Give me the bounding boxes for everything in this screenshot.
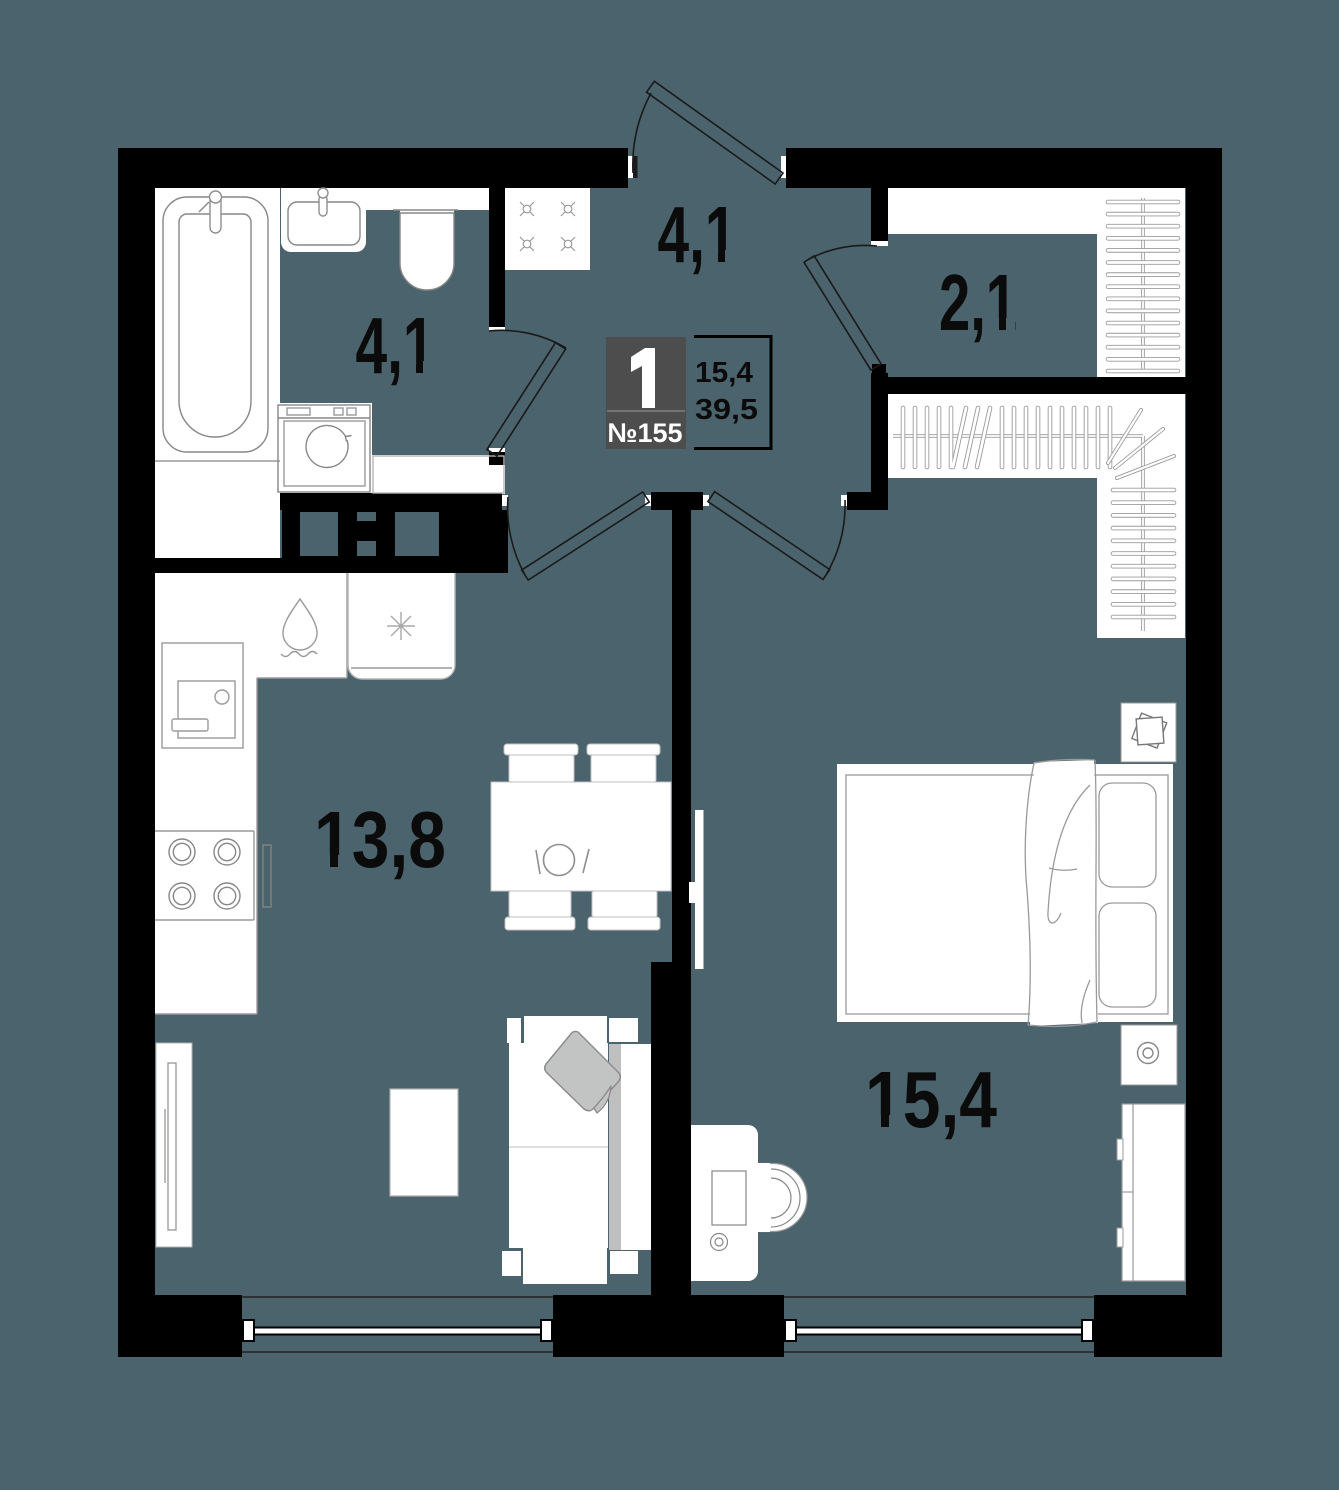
svg-text:13,8: 13,8 (314, 795, 446, 884)
svg-text:4,1: 4,1 (356, 301, 435, 390)
svg-text:2,1: 2,1 (939, 258, 1017, 347)
svg-text:15,4: 15,4 (695, 357, 753, 389)
svg-text:15,4: 15,4 (865, 1055, 997, 1144)
svg-text:№155: №155 (607, 418, 682, 448)
svg-text:4,1: 4,1 (658, 190, 737, 279)
svg-text:39,5: 39,5 (695, 394, 758, 426)
